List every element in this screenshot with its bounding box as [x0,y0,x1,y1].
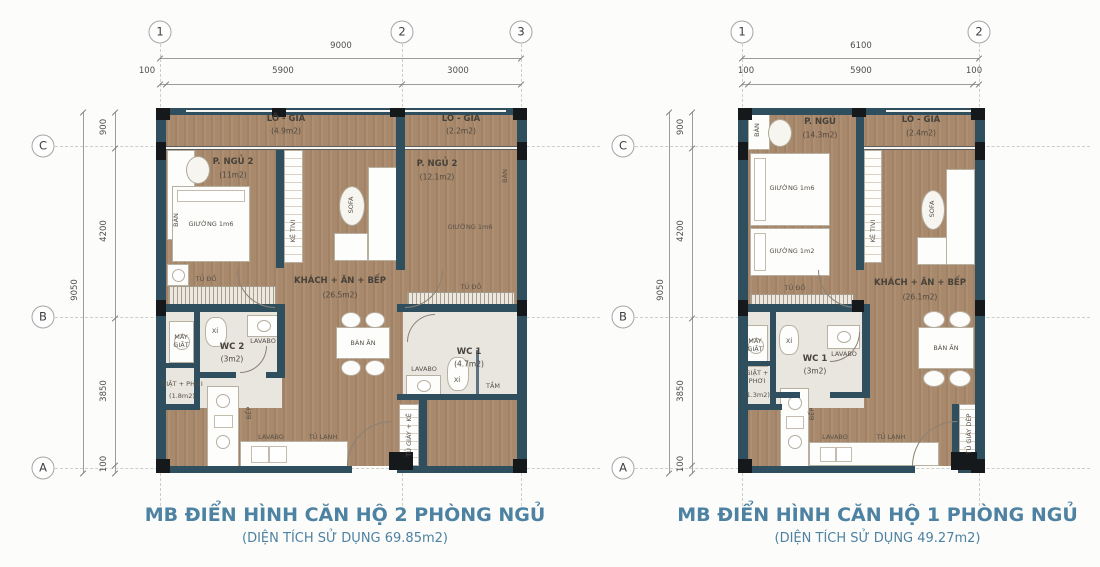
grid-bubble-col3: 3 [510,21,533,44]
plan-title-1br: MB ĐIỂN HÌNH CĂN HỘ 1 PHÒNG NGỦ [655,504,1100,526]
grid-bubble-col2: 2 [968,21,991,44]
dim-seg: 3850 [99,380,109,402]
sliding-door [864,146,975,150]
furniture-label-lavabo: LAVABO [411,365,437,373]
sliding-door [405,146,517,150]
room-area: (26.1m2) [903,293,938,302]
furniture-label-bath: TẮM [486,382,500,390]
furniture-label-stove: BẾP [245,407,253,420]
room-name: P. NGỦ [804,117,836,127]
dim-seg: 4200 [99,220,109,242]
furniture-label-desk: BÀN [172,213,180,227]
furniture-label-sofa: SOFA [928,201,936,218]
room-name: LÔ - GIA [267,114,306,124]
chair [365,360,385,376]
room-name: P. NGỦ 2 [417,159,458,169]
dim-total-side: 9050 [70,279,80,301]
dim-line [83,112,84,473]
tv-shelf [284,150,303,263]
grid-bubble-col1: 1 [731,21,754,44]
sliding-door [166,146,396,150]
furniture-label-wardrobe: TỦ ĐỒ [785,284,806,292]
dim-line [669,112,670,473]
room-area: (2.2m2) [446,127,476,136]
room-name: WC 1 [803,354,828,364]
chair [949,311,971,328]
furniture-label-desk: BÀN [753,123,761,137]
dim-total-top: 6100 [850,41,872,51]
room-area: (26.5m2) [323,291,358,300]
furniture-label-dining: BÀN ĂN [933,344,958,352]
sofa [946,169,975,265]
chair [341,312,361,328]
dim-seg: 100 [676,456,686,472]
furniture-label-sink: LAVABO [822,433,848,441]
furniture-label-wardrobe: TỦ ĐỒ [461,283,482,291]
dim-line [160,58,521,59]
room-area: (1.3m2) [744,391,770,399]
dim-total-top: 9000 [330,41,352,51]
dim-seg: 4200 [676,220,686,242]
grid-bubble-rowA: A [32,457,55,480]
dim-seg: 900 [99,119,109,135]
furniture-label-lavabo: LAVABO [831,350,857,358]
furniture-label-tv: KỆ TIVI [869,220,877,243]
room-area: (3m2) [221,355,244,364]
furniture-label-bed: GIƯỜNG 1m6 [769,184,814,192]
room-area: (2.4m2) [906,129,936,138]
chair [923,370,945,387]
furniture-label-wardrobe: TỦ ĐỒ [196,275,217,283]
dim-seg: 3850 [676,380,686,402]
grid-bubble-rowB: B [612,306,635,329]
furniture-label-toilet: XÍ [212,327,218,335]
furniture-label-shoe: TỦ GIÀY + KỆ [405,413,413,457]
grid-bubble-col1: 1 [149,21,172,44]
room-name: P. NGỦ 2 [213,157,254,167]
grid-bubble-rowA: A [612,457,635,480]
plan-subtitle-2br: (DIỆN TÍCH SỬ DỤNG 69.85m2) [130,531,560,546]
room-name: LÔ - GIA [442,114,481,124]
room-name: GIẶT + PHƠI [161,380,203,388]
dim-line [160,84,521,85]
furniture-label-fridge: TỦ LẠNH [877,433,906,441]
furniture-label-toilet: XÍ [454,376,460,384]
room-name: WC 1 [457,347,482,357]
plan-title-2br: MB ĐIỂN HÌNH CĂN HỘ 2 PHÒNG NGỦ [130,504,560,526]
room-name: KHÁCH + ĂN + BẾP [294,276,386,286]
chair [341,360,361,376]
furniture-label-fridge: TỦ LẠNH [309,433,338,441]
sofa [334,233,368,261]
dim-line [742,84,979,85]
chair [186,156,210,184]
grid-bubble-rowB: B [32,306,55,329]
room-area: (4.9m2) [271,127,301,136]
room-name: GIẶT + PHƠI [740,369,774,385]
grid-bubble-rowC: C [612,135,635,158]
furniture-label-tv: KỆ TIVI [289,220,297,243]
kitchen-stove [207,386,239,468]
furniture-label-stove: BẾP [808,408,816,421]
room-area: (11m2) [219,171,246,180]
furniture-label-bed: GIƯỜNG 1m6 [188,220,233,228]
furniture-label-lavabo: LAVABO [250,337,276,345]
room-area: (3m2) [804,367,827,376]
dim-seg: 100 [139,66,155,76]
kitchen-stove [780,388,809,468]
dim-line [692,112,693,473]
furniture-label-desk: BÀN [501,169,509,183]
sofa [917,237,947,265]
dim-line [742,58,979,59]
room-name: LÔ - GIA [902,115,941,125]
dim-seg: 100 [99,456,109,472]
plan-subtitle-1br: (DIỆN TÍCH SỬ DỤNG 49.27m2) [655,531,1100,546]
furniture-label-bed: GIƯỜNG 1m2 [769,247,814,255]
dim-seg: 5900 [272,66,294,76]
room-name: KHÁCH + ĂN + BẾP [874,278,966,288]
dim-seg: 100 [738,66,754,76]
chair [949,370,971,387]
grid-bubble-rowC: C [32,135,55,158]
furniture-label-washer: MÁY GIẶT [740,337,770,353]
floorplan-sheet: 1 2 3 C B A 9000 100 5900 3000 9050 900 … [0,0,1100,567]
nightstand [167,264,189,286]
chair [923,311,945,328]
room-area: (12.1m2) [420,173,455,182]
tv-shelf [864,150,882,263]
furniture-label-sink: LAVABO [258,433,284,441]
furniture-label-dining: BÀN ĂN [350,339,375,347]
room-area: (1.8m2) [169,392,195,400]
room-area: (14.3m2) [803,131,838,140]
dim-total-side: 9050 [656,279,666,301]
kitchen-counter [240,441,348,467]
chair [365,312,385,328]
room-area: (4.7m2) [454,360,484,369]
furniture-label-toilet: XÍ [786,337,792,345]
chair [768,119,792,147]
furniture-label-shoe: TỦ GIÀY DÉP [965,414,973,455]
lavabo [247,315,280,337]
furniture-label-bed: GIƯỜNG 1m6 [447,223,492,231]
dim-seg: 5900 [850,66,872,76]
room-name: WC 2 [220,342,245,352]
dim-seg: 3000 [447,66,469,76]
grid-bubble-col2: 2 [391,21,414,44]
dim-seg: 100 [966,66,982,76]
sofa [368,167,397,261]
furniture-label-washer: MÁY GIẶT [166,333,196,349]
furniture-label-sofa: SOFA [347,197,355,214]
dim-seg: 900 [676,119,686,135]
dim-line [115,112,116,473]
